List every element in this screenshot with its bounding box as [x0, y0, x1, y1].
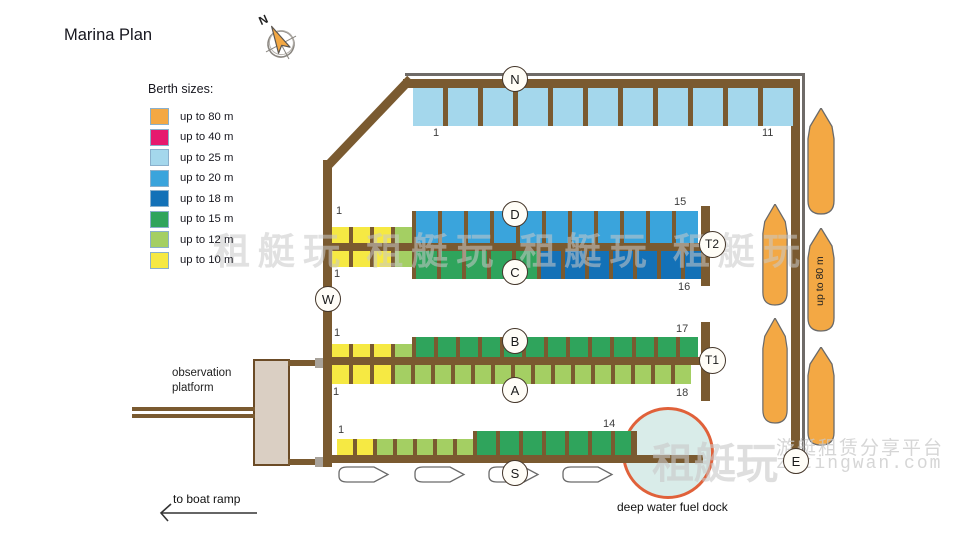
- berth-number: 1: [334, 327, 340, 339]
- berth-row-N: [413, 88, 793, 126]
- berth-number: 1: [338, 424, 344, 436]
- legend-swatch: [150, 149, 169, 166]
- berth-cell-y10: [332, 344, 349, 357]
- berth-cell-y10: [332, 227, 349, 243]
- berth-cell-g12: [615, 365, 631, 384]
- berth-cell-b20: [650, 211, 672, 243]
- berth-number: 1: [333, 386, 339, 398]
- berth-cell-g15: [658, 337, 676, 357]
- berth-cell-y10: [374, 251, 391, 267]
- yacht-icon: [761, 204, 789, 306]
- legend-item-label: up to 40 m: [180, 131, 233, 143]
- berth-cell-g12: [395, 227, 412, 243]
- berth-cell-y10: [337, 439, 353, 455]
- legend-swatch: [150, 108, 169, 125]
- dock-label-t2: T2: [699, 231, 726, 258]
- berth-cell-g12: [635, 365, 651, 384]
- north-dock: [403, 79, 793, 88]
- berth-cell-b25: [518, 88, 548, 126]
- berth-cell-g15: [466, 251, 487, 279]
- legend-item-label: up to 18 m: [180, 193, 233, 205]
- berth-cell-g12: [655, 365, 671, 384]
- east-dock: [791, 79, 800, 453]
- berth-cell-b18: [565, 251, 585, 279]
- berth-cell-g15: [460, 337, 478, 357]
- berth-number: 17: [676, 323, 688, 335]
- berth-number: 16: [678, 281, 690, 293]
- berth-cell-g15: [500, 431, 519, 455]
- berth-cell-g12: [475, 365, 491, 384]
- berth-cell-b20: [416, 211, 438, 243]
- berth-cell-g12: [595, 365, 611, 384]
- berth-cell-y10: [332, 365, 349, 384]
- legend-item: up to 40 m: [150, 129, 233, 146]
- berth-cell-y10: [374, 227, 391, 243]
- berth-row-S: [337, 431, 634, 455]
- legend-swatch: [150, 190, 169, 207]
- legend-heading: Berth sizes:: [148, 82, 213, 96]
- berth-cell-b20: [676, 211, 698, 243]
- berth-cell-g12: [435, 365, 451, 384]
- berth-cell-g15: [548, 337, 566, 357]
- legend-item-label: up to 15 m: [180, 213, 233, 225]
- boat-icon: [338, 466, 390, 483]
- berth-cell-b25: [588, 88, 618, 126]
- berth-number: 14: [603, 418, 615, 430]
- dock-label-w: W: [315, 286, 341, 312]
- boat-icon: [414, 466, 466, 483]
- marina-plan: Marina Plan Berth sizes: up to 80 mup to…: [0, 0, 980, 539]
- fuel-dock-label: deep water fuel dock: [617, 500, 728, 514]
- berth-cell-g15: [570, 337, 588, 357]
- legend-item: up to 15 m: [150, 211, 233, 228]
- berth-cell-g15: [592, 337, 610, 357]
- berth-cell-g12: [457, 439, 473, 455]
- legend-item-label: up to 12 m: [180, 234, 233, 246]
- berth-cell-g12: [397, 439, 413, 455]
- boat-ramp-arrow-icon: [150, 501, 264, 525]
- berth-cell-y10: [353, 365, 370, 384]
- berth-cell-y10: [353, 344, 370, 357]
- berth-cell-b25: [658, 88, 688, 126]
- berth-cell-b20: [546, 211, 568, 243]
- berth-cell-b25: [728, 88, 758, 126]
- legend-swatch: [150, 170, 169, 187]
- breakwater-outline-east: [802, 73, 805, 452]
- dock-label-b: B: [502, 328, 528, 354]
- berth-cell-g12: [395, 344, 412, 357]
- berth-cell-g12: [377, 439, 393, 455]
- berth-cell-b18: [541, 251, 561, 279]
- berth-number: 15: [674, 196, 686, 208]
- berth-cell-b25: [553, 88, 583, 126]
- diagonal-dock: [324, 76, 414, 170]
- berth-cell-g12: [535, 365, 551, 384]
- legend-item: up to 10 m: [150, 252, 233, 269]
- berth-cell-g15: [482, 337, 500, 357]
- berth-cell-b25: [448, 88, 478, 126]
- legend-item: up to 25 m: [150, 149, 233, 166]
- legend-item-label: up to 80 m: [180, 111, 233, 123]
- berth-cell-g15: [636, 337, 654, 357]
- legend-swatch: [150, 129, 169, 146]
- yacht-icon: [806, 108, 836, 215]
- berth-cell-b20: [442, 211, 464, 243]
- berth-cell-g15: [680, 337, 698, 357]
- legend-swatch: [150, 252, 169, 269]
- berth-number: 11: [762, 127, 773, 139]
- west-dock: [323, 160, 332, 467]
- berth-number: 1: [433, 127, 439, 139]
- south-end-piling: [631, 431, 637, 463]
- legend-item: up to 18 m: [150, 190, 233, 207]
- berth-cell-y10: [374, 365, 391, 384]
- dock-label-e: E: [783, 448, 809, 474]
- berth-cell-g12: [417, 439, 433, 455]
- legend-item: up to 80 m: [150, 108, 233, 125]
- berth-cell-g12: [555, 365, 571, 384]
- dock-label-t1: T1: [699, 347, 726, 374]
- berth-cell-g15: [438, 337, 456, 357]
- pier-ba: [330, 357, 704, 365]
- berth-cell-g12: [575, 365, 591, 384]
- berth-cell-g12: [455, 365, 471, 384]
- berth-cell-g15: [526, 337, 544, 357]
- dock-label-n: N: [502, 66, 528, 92]
- breakwater-outline-north: [405, 73, 804, 76]
- legend-item-label: up to 25 m: [180, 152, 233, 164]
- berth-cell-g12: [437, 439, 453, 455]
- legend-swatch: [150, 211, 169, 228]
- berth-cell-b20: [598, 211, 620, 243]
- berth-cell-y10: [374, 344, 391, 357]
- berth-cell-b25: [623, 88, 653, 126]
- dock-label-a: A: [502, 377, 528, 403]
- berth-cell-y10: [353, 251, 370, 267]
- berth-cell-b25: [693, 88, 723, 126]
- berth-cell-g15: [546, 431, 565, 455]
- berth-number: 18: [676, 387, 688, 399]
- berth-cell-y10: [357, 439, 373, 455]
- berth-cell-b18: [589, 251, 609, 279]
- berth-cell-g15: [416, 337, 434, 357]
- berth-cell-b18: [661, 251, 681, 279]
- berth-cell-b18: [613, 251, 633, 279]
- legend-item-label: up to 10 m: [180, 254, 233, 266]
- legend-item-label: up to 20 m: [180, 172, 233, 184]
- yacht-icon: [806, 347, 836, 446]
- berth-number: 1: [334, 268, 340, 280]
- berth-cell-g15: [523, 431, 542, 455]
- berth-cell-b20: [624, 211, 646, 243]
- platform-walkway-lower: [132, 414, 255, 418]
- pier-dc: [330, 243, 704, 251]
- legend-item: up to 12 m: [150, 231, 233, 248]
- berth-cell-b25: [483, 88, 513, 126]
- berth-cell-b18: [637, 251, 657, 279]
- berth-cell-g15: [477, 431, 496, 455]
- connector-cleat-top: [315, 358, 323, 368]
- berth-cell-g12: [675, 365, 691, 384]
- legend-item: up to 20 m: [150, 170, 233, 187]
- berth-cell-g12: [395, 251, 412, 267]
- boat-icon: [562, 466, 614, 483]
- legend-swatch: [150, 231, 169, 248]
- berth-cell-b25: [413, 88, 443, 126]
- berth-cell-g12: [395, 365, 411, 384]
- berth-cell-g12: [415, 365, 431, 384]
- dock-label-d: D: [502, 201, 528, 227]
- observation-platform-label: observation platform: [172, 366, 254, 396]
- berth-cell-b20: [572, 211, 594, 243]
- yacht-icon: [761, 318, 789, 424]
- berth-cell-b25: [763, 88, 793, 126]
- berth-cell-g15: [592, 431, 611, 455]
- dock-label-c: C: [502, 259, 528, 285]
- berth-cell-g15: [441, 251, 462, 279]
- page-title: Marina Plan: [64, 26, 152, 45]
- platform-walkway-upper: [132, 407, 255, 411]
- berth-cell-y10: [353, 227, 370, 243]
- berth-number: 1: [336, 205, 342, 217]
- east-berth-size-label: up to 80 m: [814, 231, 828, 331]
- connector-cleat-bottom: [315, 457, 323, 467]
- berth-cell-b20: [468, 211, 490, 243]
- berth-cell-g15: [614, 337, 632, 357]
- berth-cell-g15: [569, 431, 588, 455]
- observation-platform: [253, 359, 290, 466]
- berth-cell-g15: [416, 251, 437, 279]
- dock-label-s: S: [502, 460, 528, 486]
- berth-cell-y10: [332, 251, 349, 267]
